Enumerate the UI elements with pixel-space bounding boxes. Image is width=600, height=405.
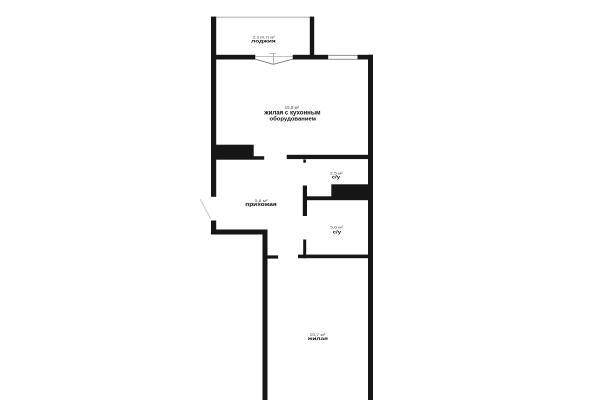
svg-text:прихожая: прихожая bbox=[245, 202, 277, 208]
svg-text:жилая: жилая bbox=[307, 337, 329, 342]
svg-text:лоджия: лоджия bbox=[251, 39, 276, 44]
svg-text:с/у: с/у bbox=[333, 230, 342, 235]
svg-text:оборудованием: оборудованием bbox=[270, 116, 317, 123]
svg-text:жилая с кухонным: жилая с кухонным bbox=[263, 109, 320, 116]
svg-text:с/у: с/у bbox=[332, 175, 341, 180]
